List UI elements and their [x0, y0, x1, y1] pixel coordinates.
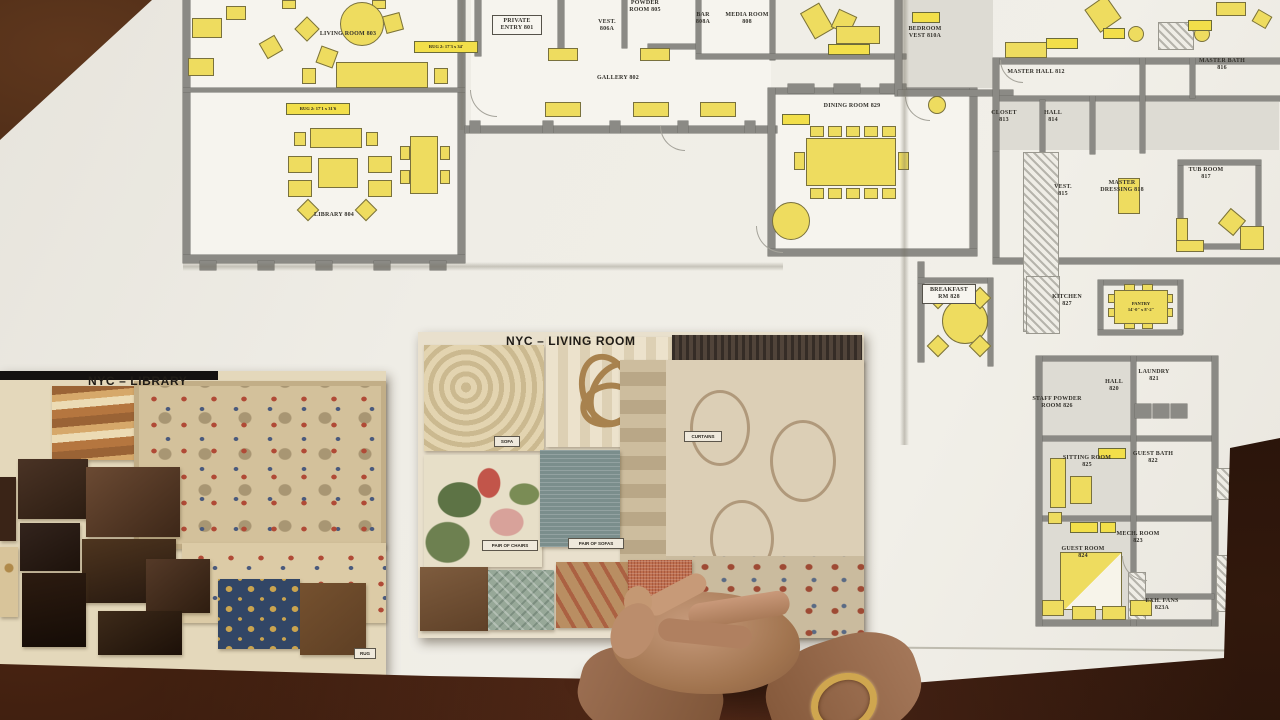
brown-velvet-swatch [420, 567, 488, 631]
swatch-label: SOFA [494, 436, 520, 447]
room-label: GUEST ROOM 824 [1058, 546, 1108, 560]
library-board-title: NYC – LIBRARY [88, 374, 187, 388]
damask-fabric-swatch [218, 579, 300, 649]
furniture-block [927, 335, 950, 358]
furniture-block [864, 188, 878, 199]
room-label: GUEST BATH 822 [1128, 451, 1178, 465]
wall-segment [1171, 404, 1187, 418]
room-label: PRIVATE ENTRY 801 [492, 15, 542, 35]
wall-segment [988, 278, 993, 366]
wall-segment [183, 88, 465, 92]
furniture-block [368, 156, 392, 173]
wall-segment [1135, 404, 1151, 418]
pantry-dims: 14'-0" x 8'-2" [1128, 307, 1154, 313]
furniture-block [1048, 512, 1062, 524]
furniture-block [400, 146, 410, 160]
furniture-block [192, 18, 222, 38]
furniture-block [1005, 42, 1047, 58]
room-label: GALLERY 802 [588, 75, 648, 82]
door-swing-arc [660, 126, 685, 151]
dimension-chip [1046, 38, 1078, 49]
room-label: SITTING ROOM 825 [1060, 455, 1114, 469]
hatch-area [1216, 555, 1254, 612]
rug-dimension-tag: RUG 2: 17'3 x 34' [414, 41, 478, 53]
room-label: EXH. FANS 823A [1138, 598, 1186, 612]
furniture-block [882, 126, 896, 137]
wall-segment [970, 88, 977, 255]
furniture-block [410, 136, 438, 194]
library-board: NYC – LIBRARY [0, 371, 386, 675]
dimension-chip [1188, 20, 1212, 31]
wall-segment [696, 54, 906, 59]
living-room-board: NYC – LIVING ROOM [418, 332, 864, 638]
furniture-block [366, 132, 378, 146]
furniture-block [864, 126, 878, 137]
dimension-chip [828, 44, 870, 55]
wall-segment [470, 121, 480, 133]
furniture-photo [86, 467, 180, 537]
furniture-photo [0, 477, 16, 541]
furniture-block [368, 180, 392, 197]
furniture-block [302, 68, 316, 84]
furniture-block [336, 62, 428, 88]
living-board-title: NYC – LIVING ROOM [506, 334, 636, 348]
furniture-photo [18, 459, 88, 519]
wall-segment [1190, 58, 1195, 98]
furniture-block [1176, 240, 1204, 252]
hatch-area [1216, 468, 1252, 500]
wall-segment [1040, 100, 1045, 152]
furniture-block [836, 26, 880, 44]
room-label: DINING ROOM 829 [820, 103, 884, 110]
furniture-block [882, 188, 896, 199]
furniture-block [440, 170, 450, 184]
room-label: VEST. 815 [1050, 184, 1076, 198]
room-label: MASTER BATH 816 [1196, 58, 1248, 72]
furniture-block [806, 138, 896, 186]
furniture-block [1216, 2, 1246, 16]
floral-edge-swatch [0, 547, 18, 617]
room-label: TUB ROOM 817 [1186, 167, 1226, 181]
wall-segment [918, 262, 924, 362]
furniture-block [1072, 606, 1096, 620]
room-label: LIVING ROOM 803 [318, 31, 378, 38]
furniture-block [294, 132, 306, 146]
teal-pattern-swatch [488, 570, 554, 630]
furniture-block [288, 156, 312, 173]
room-label: MASTER HALL 812 [1006, 69, 1066, 76]
furniture-photo [22, 573, 86, 647]
sofa-damask-swatch [424, 345, 544, 451]
wall-segment [1036, 516, 1218, 521]
dimension-chip [782, 114, 810, 125]
paper-crease-short [458, 0, 466, 130]
furniture-block [310, 128, 362, 148]
wall-segment [1098, 280, 1103, 334]
furniture-block [226, 6, 246, 20]
room-label: POWDER ROOM 805 [622, 0, 668, 14]
furniture-block [772, 202, 810, 240]
swatch-label: PAIR OF CHAIRS [482, 540, 538, 551]
wall-segment [1178, 160, 1261, 165]
wall-segment [834, 84, 860, 93]
room-label: BREAKFAST RM 828 [922, 284, 976, 304]
wall-segment [993, 58, 999, 158]
dimension-chip [1070, 522, 1098, 533]
rug-medallion [770, 420, 836, 502]
furniture-block [282, 0, 296, 9]
room-label: BEDROOM VEST 810A [900, 26, 950, 40]
room-label: LIBRARY 804 [312, 212, 356, 219]
dimension-chip [1103, 28, 1125, 39]
wall-segment [183, 0, 190, 262]
wall-segment [1178, 280, 1183, 334]
wall-segment [465, 126, 777, 133]
wall-segment [610, 121, 620, 133]
furniture-block [1252, 9, 1273, 29]
furniture-block [548, 48, 578, 61]
furniture-block [794, 152, 805, 170]
furniture-photo [98, 611, 182, 655]
wall-segment [993, 152, 999, 260]
wall-segment [770, 0, 775, 60]
wall-segment [1036, 356, 1218, 361]
room-label: BAR 808A [690, 12, 716, 26]
furniture-block [288, 180, 312, 197]
wall-segment [768, 249, 977, 256]
furniture-block [318, 158, 358, 188]
rug-dimension-tag: RUG 2: 17'1 x 31'6 [286, 103, 350, 115]
wall-segment [1098, 330, 1182, 335]
pantry-table-label: PANTRY 14'-0" x 8'-2" [1114, 290, 1168, 324]
room-label: STAFF POWDER ROOM 826 [1032, 396, 1082, 410]
furniture-block [640, 48, 670, 61]
wall-segment [918, 278, 992, 283]
wall-segment [1153, 404, 1169, 418]
room-label: MASTER DRESSING 818 [1100, 180, 1144, 194]
furniture-block [633, 102, 669, 117]
room-label: LAUNDRY 821 [1136, 369, 1172, 383]
wall-segment [543, 121, 553, 133]
wall-segment [745, 121, 755, 133]
wall-segment [1036, 620, 1218, 626]
furniture-block [810, 126, 824, 137]
room-label: MECH. ROOM 823 [1114, 531, 1162, 545]
furniture-block [828, 188, 842, 199]
furniture-block [846, 126, 860, 137]
swatch-label: RUG [354, 648, 376, 659]
furniture-block [440, 146, 450, 160]
stripe-fabric-swatch [52, 386, 142, 460]
furniture-block [340, 2, 384, 46]
furniture-block [434, 68, 448, 84]
furniture-block [545, 102, 581, 117]
furniture-block [1128, 26, 1144, 42]
furniture-block [928, 96, 946, 114]
furniture-block [1240, 226, 1264, 250]
furniture-block [700, 102, 736, 117]
room-label: HALL 820 [1102, 379, 1126, 393]
swatch-label: CURTAINS [684, 431, 722, 442]
room-label: VEST. 806A [592, 19, 622, 33]
furniture-block [188, 58, 214, 76]
furniture-block [1042, 600, 1064, 616]
dimension-chip [912, 12, 940, 23]
furniture-block [810, 188, 824, 199]
paper-crease-vertical [900, 0, 909, 445]
room-label: MEDIA ROOM 808 [722, 12, 772, 26]
furniture-photo [20, 523, 80, 571]
furniture-photo [146, 559, 210, 613]
furniture-block [800, 3, 834, 40]
wall-segment [993, 96, 1280, 101]
furniture-block [846, 188, 860, 199]
furniture-block [828, 126, 842, 137]
furniture-block [1102, 606, 1126, 620]
rug-lower-band [666, 556, 864, 638]
wall-segment [1036, 436, 1218, 441]
room-label: KITCHEN 827 [1050, 294, 1084, 308]
furniture-block [400, 170, 410, 184]
plan-sheet: LIVING ROOM 803LIBRARY 804PRIVATE ENTRY … [0, 0, 1280, 720]
wall-segment [1090, 96, 1095, 154]
room-label: CLOSET 813 [988, 110, 1020, 124]
leather-swatch [300, 583, 366, 655]
photo-of-floor-plan-and-mood-boards: LIVING ROOM 803LIBRARY 804PRIVATE ENTRY … [0, 0, 1280, 720]
furniture-block [1060, 552, 1122, 610]
bluegray-sofa-swatch [540, 450, 620, 547]
rug-medallion [690, 390, 750, 466]
wall-segment [696, 0, 701, 56]
room-label: HALL 814 [1040, 110, 1066, 124]
furniture-block [1070, 476, 1092, 504]
swatch-label: PAIR OF SOFAS [568, 538, 624, 549]
rust-stripe-swatch [556, 562, 628, 628]
wall-segment [1098, 280, 1182, 285]
coral-weave-swatch [628, 560, 692, 622]
wall-segment [788, 84, 814, 93]
wall-segment [1140, 58, 1145, 153]
paper-crease-horizontal [183, 262, 783, 271]
